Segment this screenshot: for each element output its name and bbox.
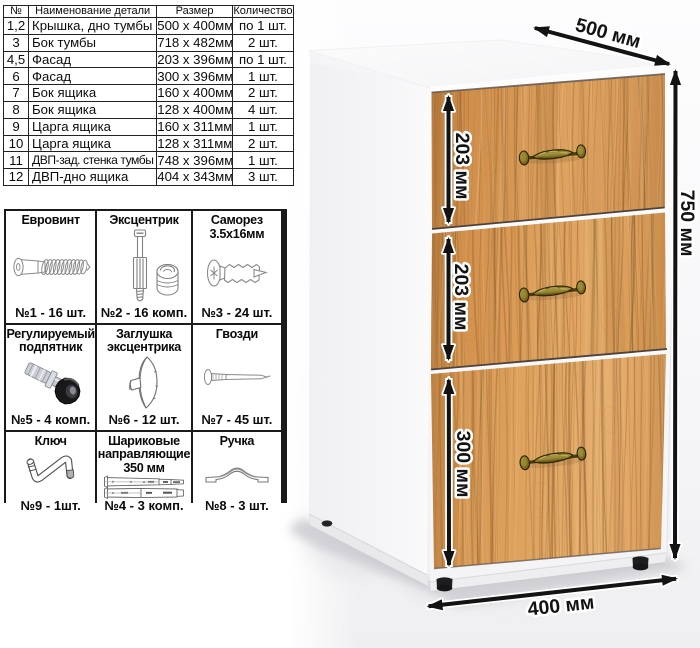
svg-text:203 мм: 203 мм [451,133,473,200]
svg-text:203 мм: 203 мм [450,264,472,331]
svg-text:300 мм: 300 мм [452,431,474,498]
svg-text:750 мм: 750 мм [676,190,698,257]
